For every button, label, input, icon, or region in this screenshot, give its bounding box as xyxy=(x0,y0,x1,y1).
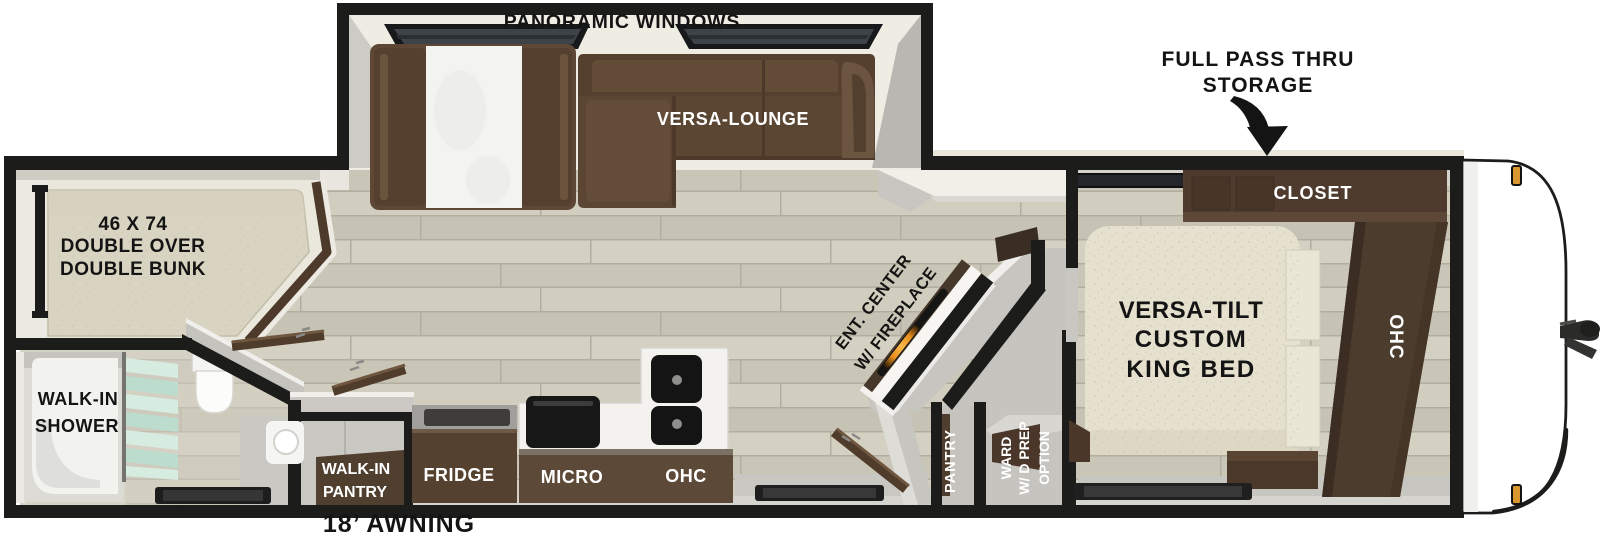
svg-text:FULL PASS THRU: FULL PASS THRU xyxy=(1162,48,1355,71)
svg-text:SHOWER: SHOWER xyxy=(35,416,119,436)
svg-text:CLOSET: CLOSET xyxy=(1273,183,1352,203)
svg-text:MICRO: MICRO xyxy=(541,467,604,487)
svg-text:18’ AWNING: 18’ AWNING xyxy=(323,510,475,538)
svg-text:WALK-IN: WALK-IN xyxy=(38,389,118,409)
svg-text:VERSA-TILT: VERSA-TILT xyxy=(1119,297,1264,324)
svg-text:FRIDGE: FRIDGE xyxy=(423,465,494,485)
svg-text:OHC: OHC xyxy=(665,466,707,486)
svg-text:DOUBLE BUNK: DOUBLE BUNK xyxy=(60,259,206,280)
svg-text:WARD: WARD xyxy=(998,437,1014,480)
svg-text:PANORAMIC WINDOWS: PANORAMIC WINDOWS xyxy=(504,11,740,33)
svg-text:CUSTOM: CUSTOM xyxy=(1135,326,1248,353)
svg-text:KING BED: KING BED xyxy=(1126,356,1255,383)
svg-text:OHC: OHC xyxy=(1385,314,1406,359)
svg-text:OPTION: OPTION xyxy=(1036,431,1052,485)
svg-text:VERSA-LOUNGE: VERSA-LOUNGE xyxy=(657,109,809,129)
svg-text:WALK-IN: WALK-IN xyxy=(322,461,390,478)
svg-text:PANTRY: PANTRY xyxy=(943,429,959,493)
svg-text:STORAGE: STORAGE xyxy=(1203,74,1313,97)
svg-text:46 X 74: 46 X 74 xyxy=(99,214,168,235)
svg-text:DOUBLE OVER: DOUBLE OVER xyxy=(61,236,206,257)
svg-text:PANTRY: PANTRY xyxy=(323,484,387,501)
svg-text:W/ D PREP: W/ D PREP xyxy=(1016,421,1032,494)
